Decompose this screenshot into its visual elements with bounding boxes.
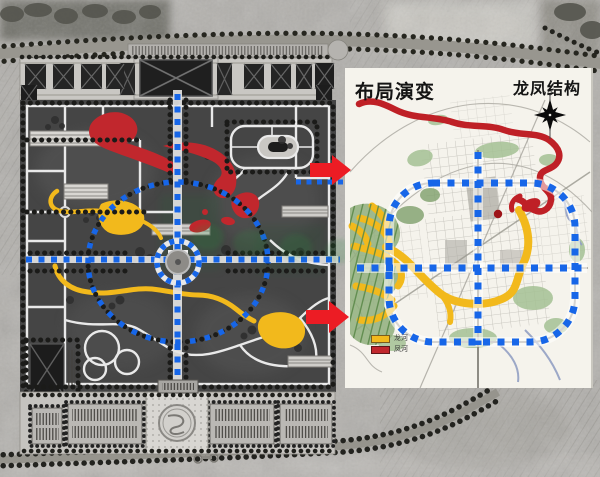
map-legend: 龙河 凤河 bbox=[371, 335, 408, 354]
legend-item-dragon-river: 龙河 bbox=[371, 335, 408, 343]
dragon-river-swatch bbox=[371, 335, 390, 343]
presentation-slide: 布局演变 龙凤结构 龙河 凤河 bbox=[0, 0, 600, 477]
composite-map-graphic bbox=[0, 0, 600, 477]
phoenix-river-swatch bbox=[371, 346, 390, 354]
dragon-river-label: 龙河 bbox=[394, 335, 408, 343]
phoenix-river-label: 凤河 bbox=[394, 346, 408, 354]
legend-item-phoenix-river: 凤河 bbox=[371, 346, 408, 354]
